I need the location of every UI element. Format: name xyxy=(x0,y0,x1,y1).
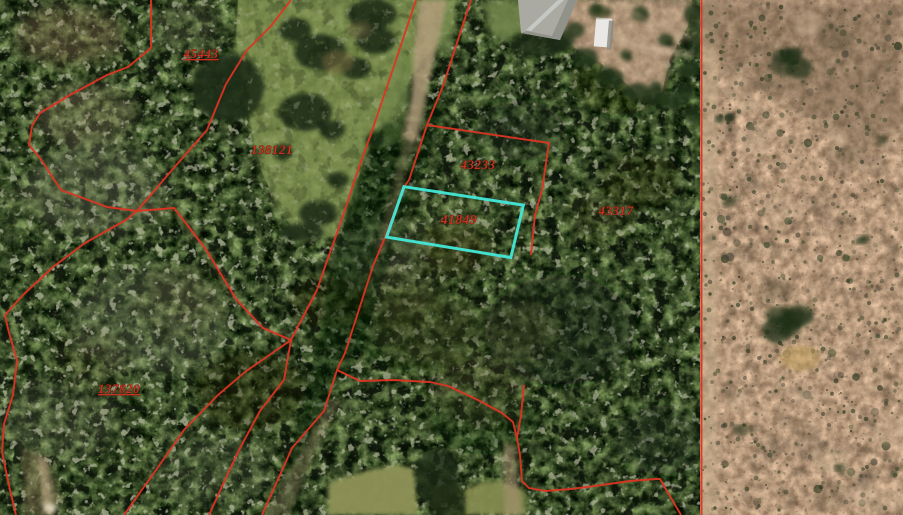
svg-text:45443: 45443 xyxy=(183,46,219,61)
svg-text:41849: 41849 xyxy=(440,212,477,227)
svg-text:137820: 137820 xyxy=(98,381,140,396)
svg-text:43317: 43317 xyxy=(598,203,634,218)
svg-text:43233: 43233 xyxy=(460,157,496,172)
svg-text:138121: 138121 xyxy=(251,142,293,157)
